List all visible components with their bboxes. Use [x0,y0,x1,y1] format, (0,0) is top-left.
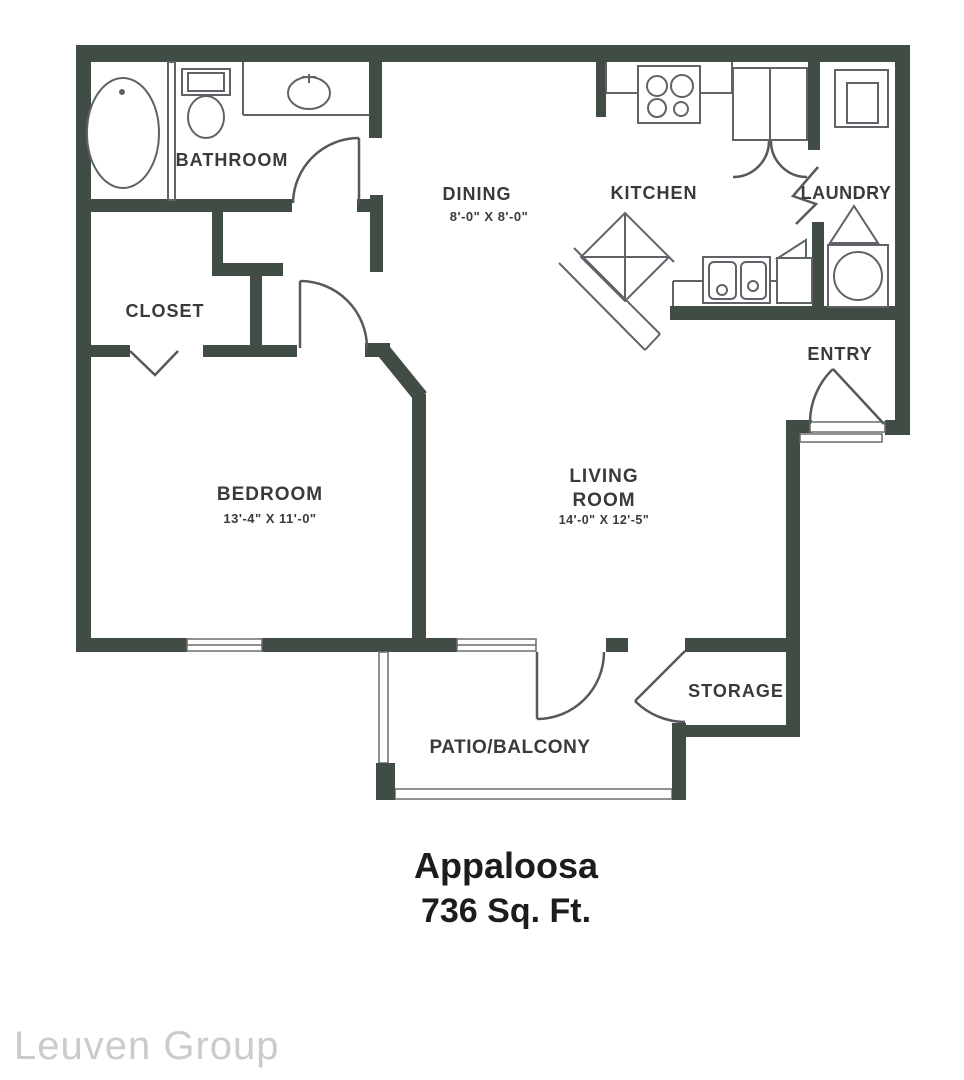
plan-title: Appaloosa [414,845,599,886]
living-room-label-line2: ROOM [572,490,635,511]
wall-dining-divider-lower [370,195,383,272]
dining-label: DINING [443,184,512,204]
entry-door [810,369,884,424]
tub-drain [119,89,125,95]
stove [638,66,700,123]
counter-right [700,62,732,93]
living-room-window [457,639,536,651]
wall-dining-divider-upper [369,62,382,138]
fridge-doors [733,141,807,177]
entry-threshold [800,422,885,442]
wall-bedroom-bottom-b [262,638,457,652]
washer [828,206,888,307]
kitchen-label: KITCHEN [611,183,698,203]
counter-left [606,62,638,93]
plan-area: 736 Sq. Ft. [421,892,591,930]
toilet [182,69,230,138]
storage-label: STORAGE [688,681,784,701]
wall-right-upper [895,45,910,433]
bathroom-label: BATHROOM [176,150,289,170]
watermark: Leuven Group [14,1024,280,1068]
closet-label: CLOSET [125,301,204,321]
tub-halfwall [168,62,175,200]
wall-bedroom-top-a [76,345,130,357]
wall-kitchen-bottom [670,306,910,320]
floor-plan: BATHROOM CLOSET BEDROOM 13'-4" X 11'-0" … [0,0,964,1080]
living-room-label-line1: LIVING [569,466,638,487]
wall-bedroom-diagonal [382,349,421,397]
wall-bedroom-bottom-a [76,638,187,652]
wall-laundry-stub-lower [812,222,824,308]
bathroom-vanity [243,62,370,115]
bedroom-dimensions: 13'-4" X 11'-0" [223,511,316,526]
living-room-dimensions: 14'-0" X 12'-5" [559,513,650,527]
entry-label: ENTRY [807,344,872,364]
storage-door [635,651,685,722]
patio-door [537,652,604,719]
kitchen-sink-counter [673,240,812,306]
patio-label: PATIO/BALCONY [430,737,591,758]
refrigerator [733,68,807,140]
wall-top [76,45,910,62]
cabinet-corner [778,240,806,258]
kitchen-island [559,213,674,350]
wall-storage-bottom [672,725,800,737]
bedroom-label: BEDROOM [217,484,323,505]
bathroom-fixtures [87,62,370,200]
wall-fridge-laundry-stub [808,62,820,150]
wall-storage-top [685,638,786,652]
bedroom-door [300,281,367,348]
patio-railing [376,652,686,800]
wall-bedroom-top-b [203,345,297,357]
exterior-walls [76,45,910,737]
title-block: Appaloosa 736 Sq. Ft. [414,845,599,930]
dishwasher [777,258,812,303]
dryer [835,70,888,127]
wall-bedroom-living-divider [412,394,426,652]
wall-bathroom-bottom [76,199,292,212]
wall-living-bottom-a [606,638,628,652]
closet-bifold-door [130,351,178,375]
laundry-label: LAUNDRY [801,183,892,203]
wall-entry-bottom-right [885,420,910,435]
room-labels: BATHROOM CLOSET BEDROOM 13'-4" X 11'-0" … [125,150,891,758]
wall-right-lower [786,420,800,737]
bedroom-window [187,639,262,651]
wall-kitchen-stub [596,62,606,117]
floor-plan-page: BATHROOM CLOSET BEDROOM 13'-4" X 11'-0" … [0,0,964,1080]
bathroom-door [293,138,359,203]
dining-dimensions: 8'-0" X 8'-0" [450,209,528,224]
wall-closet-right [250,263,262,347]
doors [130,138,884,722]
wall-hall-horizontal [212,263,283,276]
